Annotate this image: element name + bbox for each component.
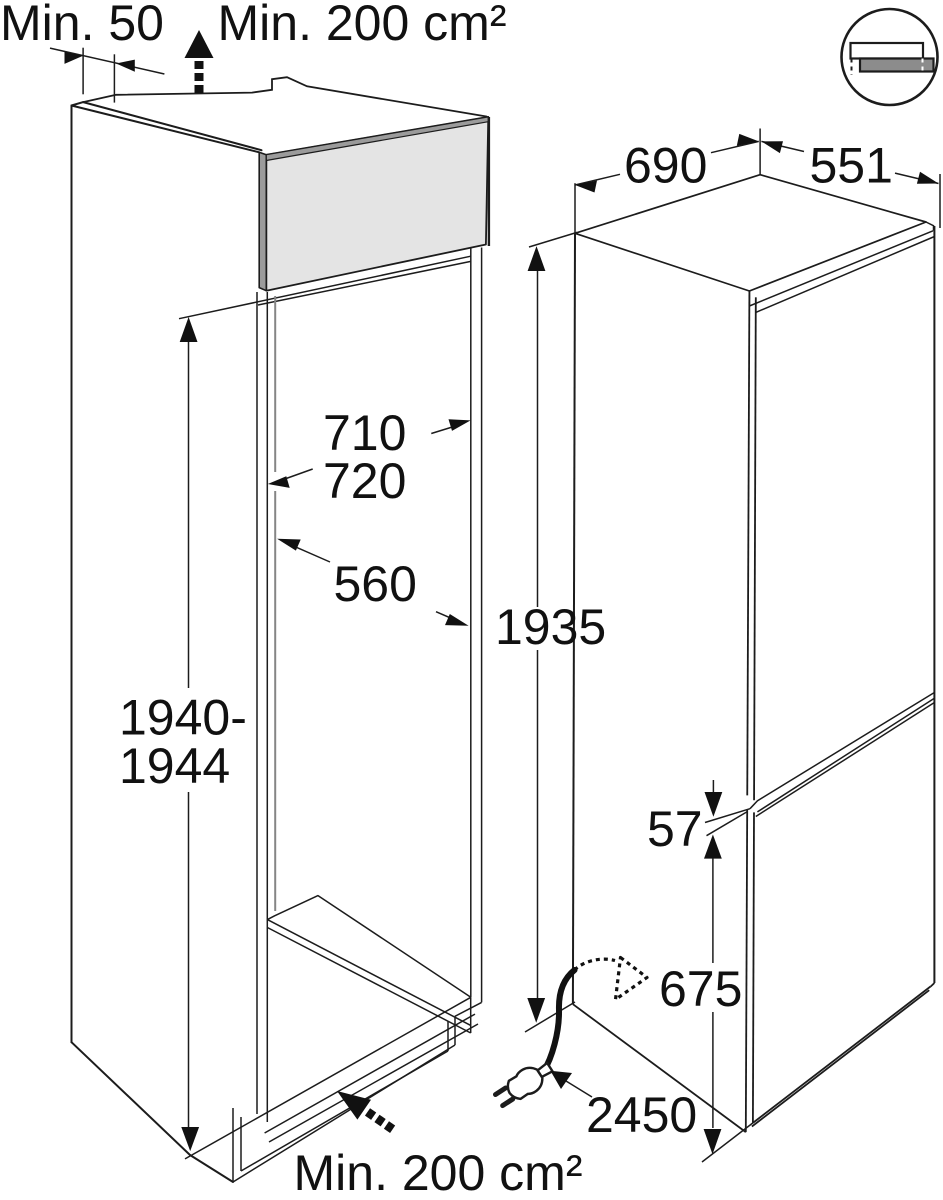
- svg-text:Min. 200 cm²: Min. 200 cm²: [218, 0, 507, 51]
- svg-text:Min. 50: Min. 50: [0, 0, 164, 51]
- svg-text:560: 560: [334, 556, 417, 612]
- svg-text:1940-: 1940-: [119, 690, 247, 746]
- svg-text:1944: 1944: [119, 738, 230, 794]
- svg-text:675: 675: [659, 961, 742, 1017]
- svg-text:Min. 200 cm²: Min. 200 cm²: [294, 1145, 583, 1200]
- svg-text:690: 690: [624, 138, 707, 194]
- svg-text:1935: 1935: [495, 599, 606, 655]
- svg-text:57: 57: [647, 801, 703, 857]
- svg-text:551: 551: [810, 138, 893, 194]
- svg-text:2450: 2450: [586, 1087, 697, 1143]
- svg-text:720: 720: [323, 453, 406, 509]
